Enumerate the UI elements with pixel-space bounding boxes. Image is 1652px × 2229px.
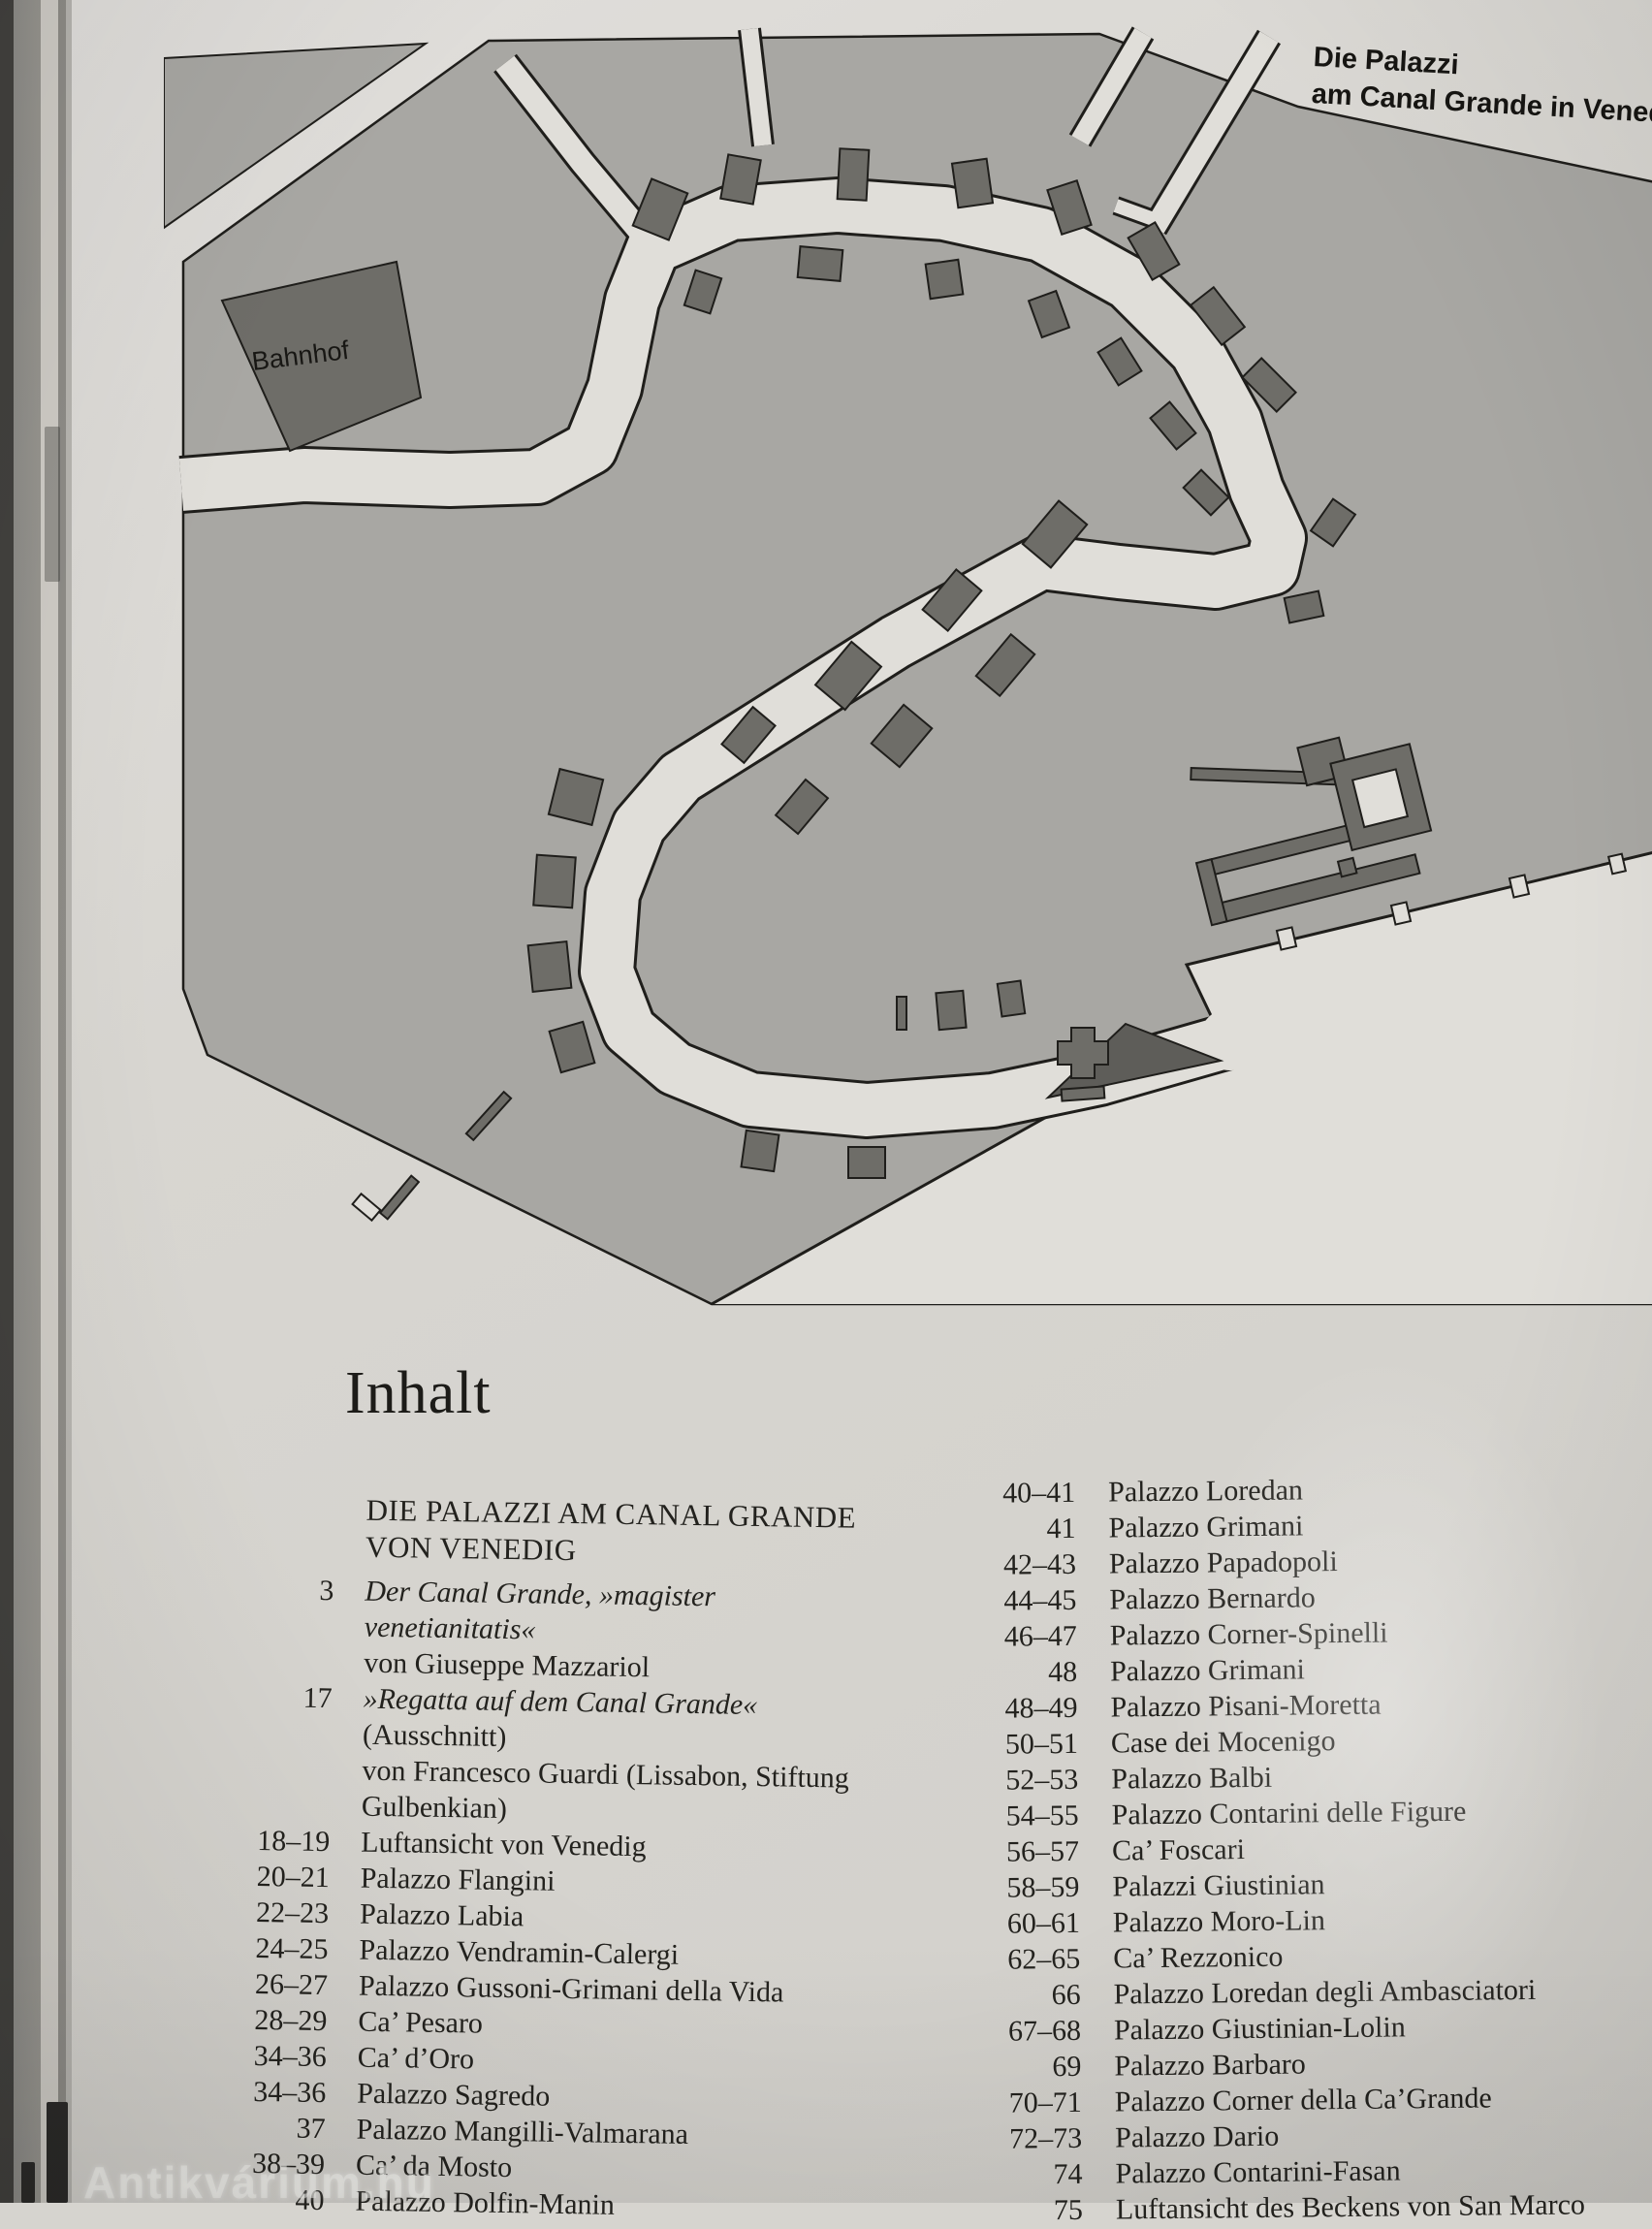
toc-title-line: Der Canal Grande, »magister <box>365 1574 715 1615</box>
toc-title: Palazzo Moro-Lin <box>1113 1902 1325 1940</box>
toc-pages: 17 <box>257 1679 333 1824</box>
toc-title-line: Palazzo Papadopoli <box>1109 1544 1338 1581</box>
toc-pages: 37 <box>251 2110 326 2147</box>
toc-pages: 48 <box>975 1654 1077 1691</box>
toc-title-line: Palazzo Balbi <box>1111 1760 1272 1798</box>
toc-pages: 66 <box>978 1977 1080 2014</box>
toc-pages: 62–65 <box>978 1941 1080 1978</box>
toc-pages: 67–68 <box>979 2013 1081 2050</box>
toc-section-title: DIE PALAZZI AM CANAL GRANDE VON VENEDIG <box>365 1492 960 1576</box>
toc-title-line: Palazzo Grimani <box>1108 1508 1303 1545</box>
toc-title: Palazzo Loredan degli Ambasciatori <box>1113 1972 1536 2013</box>
toc-title: Palazzo Mangilli-Valmarana <box>356 2112 688 2152</box>
book-edge-strip <box>14 0 41 2203</box>
toc-title-line: Case dei Mocenigo <box>1111 1723 1336 1761</box>
book-page-photo: { "colors": { "page_bg": "#d6d4cf", "lan… <box>0 0 1652 2203</box>
toc-title: Palazzo Vendramin-Calergi <box>359 1932 679 1973</box>
toc-pages: 26–27 <box>254 1966 329 2003</box>
toc-pages: 41 <box>973 1511 1075 1547</box>
toc-title: Luftansicht des Beckens von San Marco <box>1116 2186 1585 2227</box>
toc-title: Palazzo Papadopoli <box>1109 1544 1338 1581</box>
page-edge-strip <box>41 0 58 2203</box>
toc-pages: 60–61 <box>978 1905 1080 1942</box>
toc-title-line: Palazzo Contarini delle Figure <box>1111 1794 1466 1833</box>
toc-title-line: Palazzo Flangini <box>360 1861 555 1899</box>
toc-pages: 48–49 <box>975 1690 1077 1727</box>
toc-pages: 56–57 <box>977 1833 1079 1870</box>
toc-title-line: Luftansicht des Beckens von San Marco <box>1116 2186 1585 2227</box>
book-page: Bahnhof Die Palazzi am Canal Grande in V… <box>72 0 1652 2203</box>
toc-title: Palazzo Barbaro <box>1114 2046 1306 2084</box>
toc-title-line: Palazzo Vendramin-Calergi <box>359 1932 679 1973</box>
toc-title: Palazzo Flangini <box>360 1861 555 1899</box>
toc-pages: 18–19 <box>256 1823 331 1860</box>
toc-title-line: Ca’ Pesaro <box>358 2004 483 2042</box>
toc-title: Case dei Mocenigo <box>1111 1723 1336 1761</box>
toc-title: Der Canal Grande, »magistervenetianitati… <box>364 1574 715 1687</box>
toc-title: Palazzo Dario <box>1115 2118 1279 2156</box>
toc-left-column: DIE PALAZZI AM CANAL GRANDE VON VENEDIG … <box>250 1490 960 2228</box>
toc-title-line: Palazzo Pisani-Moretta <box>1110 1687 1381 1726</box>
toc-title: Palazzo Balbi <box>1111 1760 1272 1798</box>
toc-title-line: Palazzo Corner della Ca’Grande <box>1115 2080 1492 2119</box>
toc-title: Palazzo Labia <box>360 1896 524 1935</box>
toc-pages: 52–53 <box>976 1762 1078 1799</box>
toc-title: Ca’ Foscari <box>1112 1831 1245 1868</box>
toc-title: Ca’ d’Oro <box>358 2040 475 2078</box>
toc-title: Palazzo Contarini delle Figure <box>1111 1794 1466 1833</box>
toc-title-line: von Giuseppe Mazzariol <box>364 1645 715 1687</box>
toc-left-list: 3Der Canal Grande, »magistervenetianitat… <box>250 1572 958 2228</box>
toc-title-line: Palazzo Giustinian-Lolin <box>1114 2009 1406 2048</box>
toc-title-line: Ca’ Foscari <box>1112 1831 1245 1868</box>
toc-title-line: Palazzo Moro-Lin <box>1113 1902 1325 1940</box>
photo-artifact <box>45 427 60 582</box>
toc-title-line: Palazzo Mangilli-Valmarana <box>356 2112 688 2152</box>
photo-artifact <box>47 2102 68 2203</box>
toc-title-line: Palazzo Barbaro <box>1114 2046 1306 2084</box>
toc-title: Palazzo Corner della Ca’Grande <box>1115 2080 1492 2119</box>
toc-title: »Regatta auf dem Canal Grande«(Ausschnit… <box>362 1681 851 1832</box>
campanile <box>1338 858 1356 876</box>
toc-pages: 74 <box>980 2156 1082 2193</box>
toc-right-column: 40–41Palazzo Loredan41Palazzo Grimani42–… <box>973 1468 1652 2229</box>
toc-pages: 44–45 <box>974 1582 1076 1619</box>
toc-pages: 20–21 <box>255 1859 330 1895</box>
toc-title: Palazzo Loredan <box>1108 1472 1303 1510</box>
toc-title: Palazzi Giustinian <box>1112 1866 1325 1904</box>
toc-title: Ca’ Pesaro <box>358 2004 483 2042</box>
toc-pages: 72–73 <box>980 2120 1082 2157</box>
toc-title-line: Ca’ Rezzonico <box>1113 1939 1284 1977</box>
canal-grande-map: Bahnhof <box>164 19 1652 1309</box>
toc-title-line: venetianitatis« <box>365 1609 715 1651</box>
toc-pages: 69 <box>979 2049 1081 2086</box>
toc-title-line: Palazzo Sagredo <box>357 2076 551 2115</box>
book-edge-dark-strip <box>0 0 14 2203</box>
toc-right-list: 40–41Palazzo Loredan41Palazzo Grimani42–… <box>973 1468 1652 2229</box>
toc-title-line: Palazzi Giustinian <box>1112 1866 1325 1904</box>
toc-pages: 28–29 <box>253 2002 328 2039</box>
map-svg: Bahnhof <box>164 19 1652 1309</box>
toc-pages: 70–71 <box>980 2085 1082 2121</box>
toc-pages: 42–43 <box>974 1546 1076 1583</box>
toc-title-line: Palazzo Loredan <box>1108 1472 1303 1510</box>
toc-title: Luftansicht von Venedig <box>361 1825 647 1865</box>
toc-title-line: Luftansicht von Venedig <box>361 1825 647 1865</box>
toc-title: Palazzo Grimani <box>1108 1508 1303 1545</box>
toc-title-line: Palazzo Bernardo <box>1109 1579 1316 1617</box>
toc-pages: 75 <box>981 2192 1083 2229</box>
toc-row: 3Der Canal Grande, »magistervenetianitat… <box>259 1572 959 1690</box>
toc-pages: 3 <box>259 1572 334 1680</box>
toc-row: 75Luftansicht des Beckens von San Marco <box>981 2185 1652 2229</box>
toc-title: Palazzo Contarini-Fasan <box>1115 2152 1400 2191</box>
toc-title: Palazzo Giustinian-Lolin <box>1114 2009 1406 2048</box>
photo-artifact <box>21 2162 35 2203</box>
toc-title: Palazzo Sagredo <box>357 2076 551 2115</box>
toc-title-line: Palazzo Dario <box>1115 2118 1279 2156</box>
page-edge-shadow <box>58 0 66 2203</box>
toc-pages: 50–51 <box>976 1726 1078 1763</box>
toc-title: Palazzo Corner-Spinelli <box>1110 1615 1388 1654</box>
toc-title-line: Palazzo Corner-Spinelli <box>1110 1615 1388 1654</box>
toc-title-line: Palazzo Labia <box>360 1896 524 1935</box>
toc-title-line: Ca’ d’Oro <box>358 2040 475 2078</box>
toc-pages: 46–47 <box>975 1618 1077 1655</box>
toc-row: 17»Regatta auf dem Canal Grande«(Ausschn… <box>257 1679 957 1833</box>
toc-title-line: Palazzo Contarini-Fasan <box>1115 2152 1400 2191</box>
toc-title: Palazzo Bernardo <box>1109 1579 1316 1617</box>
toc-heading: Inhalt <box>345 1359 492 1428</box>
toc-pages: 34–36 <box>253 2038 328 2075</box>
toc-pages: 40–41 <box>973 1475 1075 1512</box>
toc-pages: 54–55 <box>976 1798 1078 1834</box>
toc-pages: 24–25 <box>254 1930 329 1967</box>
toc-title: Palazzo Pisani-Moretta <box>1110 1687 1381 1726</box>
toc-pages: 58–59 <box>977 1869 1079 1906</box>
toc-title: Palazzo Grimani <box>1110 1651 1305 1689</box>
toc-title-line: Palazzo Grimani <box>1110 1651 1305 1689</box>
toc-pages: 34–36 <box>252 2074 327 2111</box>
toc-pages: 22–23 <box>255 1895 330 1931</box>
watermark: Antikvárium.hu <box>83 2156 435 2209</box>
toc-title: Ca’ Rezzonico <box>1113 1939 1284 1977</box>
toc-title-line: Palazzo Loredan degli Ambasciatori <box>1113 1972 1536 2013</box>
